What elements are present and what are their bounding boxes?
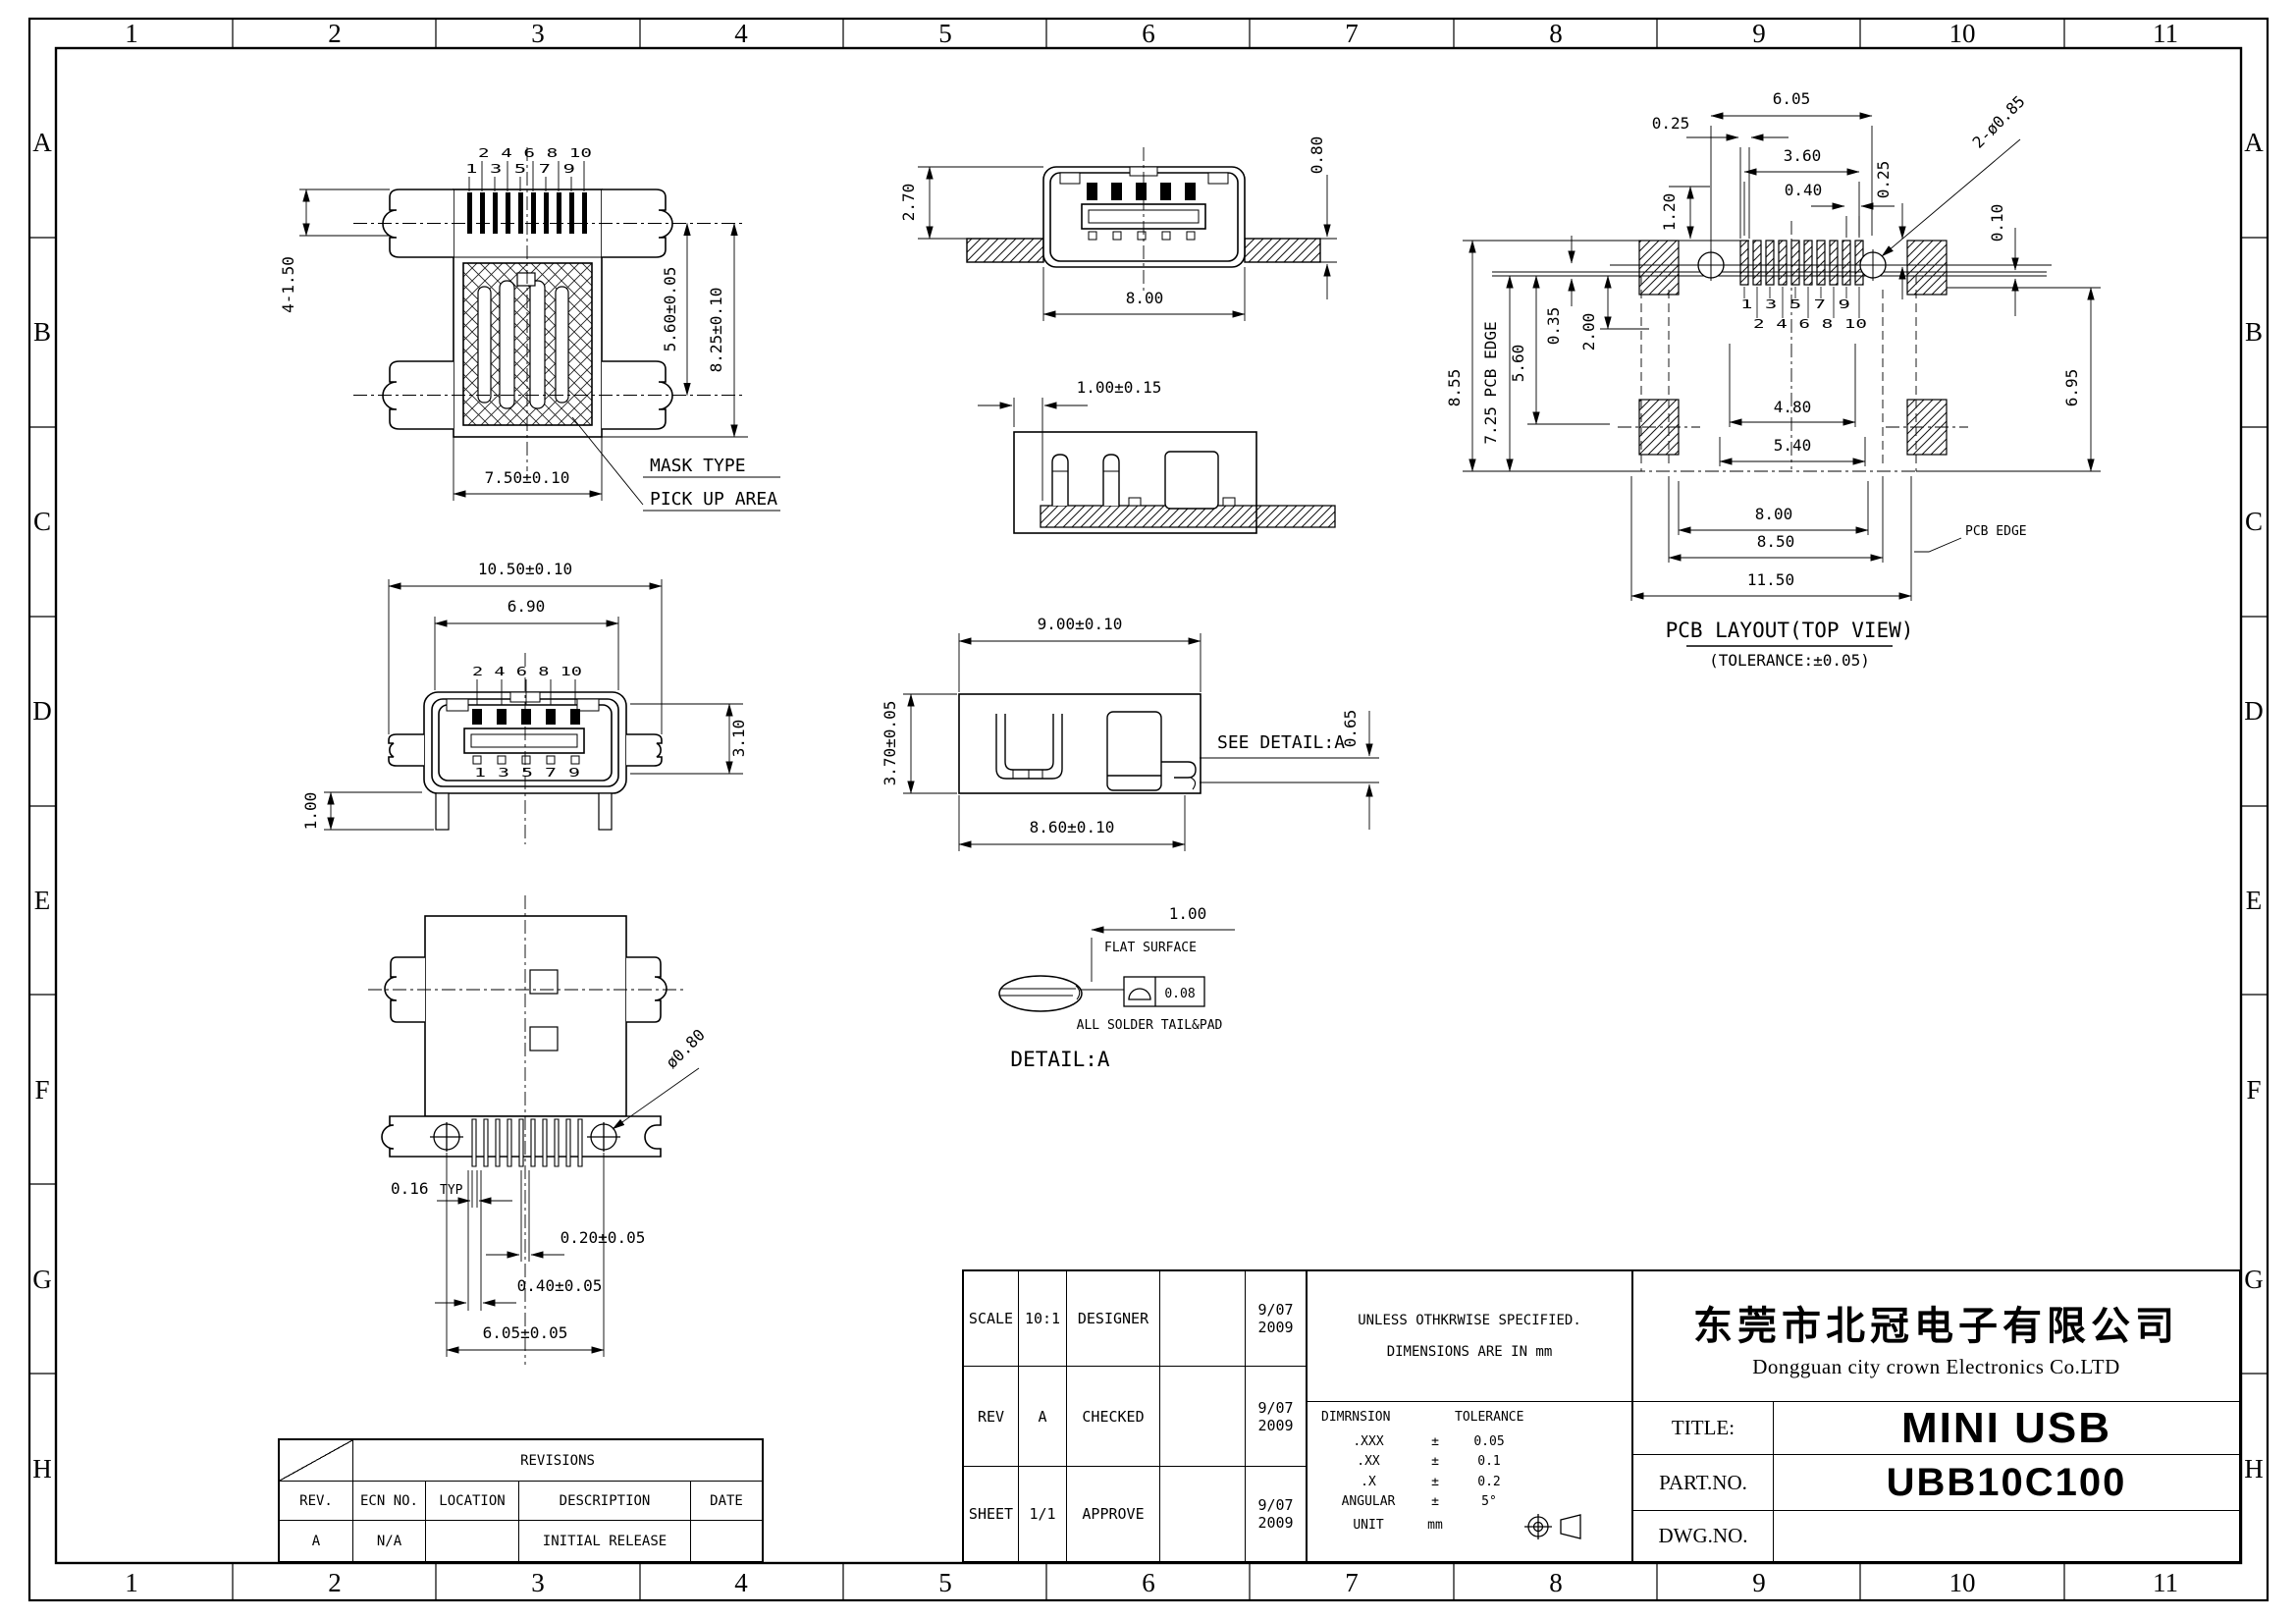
label-pickup-area: PICK UP AREA xyxy=(650,489,777,510)
dim-855: 8.55 xyxy=(1445,369,1464,407)
zone-col-top: 8 xyxy=(1549,19,1563,48)
dim-pcb-thickness: 0.80 xyxy=(1308,136,1326,175)
dim-hole: ø0.80 xyxy=(662,1025,708,1071)
tol-row-value: 0.1 xyxy=(1455,1452,1523,1473)
pin-numbers-odd: 1 3 5 7 9 xyxy=(465,162,575,176)
zone-col-bottom: 3 xyxy=(531,1568,545,1597)
tol-header-tolerance: TOLERANCE xyxy=(1455,1408,1523,1429)
signature-table: SCALE 10:1 DESIGNER 9/07 2009 REV A CHEC… xyxy=(962,1269,1308,1563)
location-col-header: LOCATION xyxy=(426,1482,519,1521)
plus-minus: ± xyxy=(1415,1452,1455,1473)
dim-540: 5.40 xyxy=(1774,436,1812,455)
zone-col-top: 3 xyxy=(531,19,545,48)
dim-shell: 6.90 xyxy=(507,597,546,616)
approve-date: 9/07 2009 xyxy=(1246,1467,1306,1561)
ecn-col-header: ECN NO. xyxy=(353,1482,426,1521)
plus-minus: ± xyxy=(1415,1432,1455,1453)
sheet-label: SHEET xyxy=(964,1467,1019,1561)
dim-360: 3.60 xyxy=(1784,146,1822,165)
dim-tail: 0.65 xyxy=(1341,710,1360,748)
dim-010: 0.10 xyxy=(1988,204,2006,243)
zone-row-right: H xyxy=(2244,1454,2264,1483)
tol-row-label: ANGULAR xyxy=(1321,1492,1415,1513)
dim-left: 3.70±0.05 xyxy=(881,701,899,786)
location-value xyxy=(426,1521,519,1561)
zone-col-top: 10 xyxy=(1949,19,1976,48)
rev-col-header: REV. xyxy=(280,1482,353,1521)
tol-row-value: 0.2 xyxy=(1455,1473,1523,1493)
zone-row-right: C xyxy=(2245,507,2263,536)
dim-lead: 1.00±0.15 xyxy=(1077,378,1162,397)
date-month: 9/07 xyxy=(1257,1496,1293,1514)
dim-flat: 1.00 xyxy=(1169,904,1207,923)
dim-standoff: 1.00 xyxy=(301,792,320,831)
date-year: 2009 xyxy=(1257,1417,1293,1434)
general-notes: UNLESS OTHKRWISE SPECIFIED. DIMENSIONS A… xyxy=(1308,1269,1631,1402)
rev-value: A xyxy=(1019,1367,1067,1467)
dim-1150: 11.50 xyxy=(1747,570,1794,589)
checked-date: 9/07 2009 xyxy=(1246,1367,1306,1467)
dim-height: 2.70 xyxy=(899,184,918,222)
zone-col-bottom: 5 xyxy=(938,1568,952,1597)
tol-header-dimension: DIMRNSION xyxy=(1321,1408,1415,1429)
dim-725-pcb-edge: 7.25 PCB EDGE xyxy=(1481,321,1500,444)
zone-row-right: B xyxy=(2245,317,2263,347)
date-year: 2009 xyxy=(1257,1514,1293,1532)
pin-numbers-top: 2 4 6 8 10 xyxy=(472,665,582,678)
zone-col-top: 9 xyxy=(1752,19,1766,48)
scale-label: SCALE xyxy=(964,1271,1019,1367)
revision-diagonal-cell xyxy=(280,1440,353,1482)
dim-pin-suffix: TYP xyxy=(440,1183,463,1198)
zone-col-bottom: 10 xyxy=(1949,1568,1976,1597)
zone-col-top: 11 xyxy=(2153,19,2178,48)
zone-row-right: A xyxy=(2244,128,2264,157)
dim-040: 0.40 xyxy=(1785,181,1823,199)
zone-col-bottom: 2 xyxy=(328,1568,342,1597)
plus-minus: ± xyxy=(1415,1473,1455,1493)
pcb-pin-numbers-odd: 1 3 5 7 9 xyxy=(1740,297,1850,311)
dim-span: 6.05±0.05 xyxy=(483,1323,568,1342)
date-month: 9/07 xyxy=(1257,1399,1293,1417)
dim-outer: 8.25±0.10 xyxy=(707,288,725,373)
dim-width: 7.50±0.10 xyxy=(485,468,570,487)
dim-480: 4.80 xyxy=(1774,398,1812,416)
part-no-value: UBB10C100 xyxy=(1774,1455,2239,1511)
company-name: 东莞市北冠电子有限公司 Dongguan city crown Electron… xyxy=(1633,1271,2239,1402)
zone-col-bottom: 9 xyxy=(1752,1568,1766,1597)
date-year: 2009 xyxy=(1257,1319,1293,1336)
dim-605: 6.05 xyxy=(1773,89,1811,108)
plus-minus: ± xyxy=(1415,1492,1455,1513)
zone-col-top: 2 xyxy=(328,19,342,48)
flatness-frame: 0.08 xyxy=(1124,977,1204,1006)
zone-row-left: B xyxy=(33,317,51,347)
label-solder: ALL SOLDER TAIL&PAD xyxy=(1077,1018,1223,1033)
ecn-value: N/A xyxy=(353,1521,426,1561)
dim-120: 1.20 xyxy=(1660,193,1679,232)
zone-row-left: C xyxy=(33,507,51,536)
zone-col-top: 4 xyxy=(734,19,748,48)
view-top-mask: 1 3 5 7 9 2 4 6 8 10 4-1.50 5.60±0.05 8.… xyxy=(279,146,780,511)
zone-col-top: 1 xyxy=(125,19,138,48)
pcb-pin-numbers-even: 2 4 6 8 10 xyxy=(1753,317,1867,331)
tol-row-label: .XXX xyxy=(1321,1432,1415,1453)
zone-col-bottom: 7 xyxy=(1345,1568,1359,1597)
view-side: 9.00±0.10 3.70±0.05 8.60±0.10 SEE DETAIL… xyxy=(881,615,1379,851)
rev-label: REV xyxy=(964,1367,1019,1467)
dim-bottom: 8.60±0.10 xyxy=(1030,818,1115,836)
dim-height: 3.10 xyxy=(729,720,748,758)
zone-row-left: F xyxy=(34,1075,49,1105)
dim-holes: 2-ø0.85 xyxy=(1969,92,2029,152)
zone-row-right: D xyxy=(2244,696,2264,726)
dwg-no-label: DWG.NO. xyxy=(1633,1511,1774,1561)
view-front-pcb: 2.70 0.80 8.00 xyxy=(899,136,1337,321)
description-col-header: DESCRIPTION xyxy=(519,1482,691,1521)
dim-025-left: 0.25 xyxy=(1652,114,1690,133)
zone-row-left: G xyxy=(32,1265,52,1294)
dim-035: 0.35 xyxy=(1544,307,1563,346)
dim-200: 2.00 xyxy=(1579,313,1598,351)
dim-pin-width: 0.16 xyxy=(391,1179,429,1198)
zone-col-top: 6 xyxy=(1142,19,1155,48)
zone-row-left: E xyxy=(34,886,51,915)
zone-col-top: 5 xyxy=(938,19,952,48)
zone-col-bottom: 11 xyxy=(2153,1568,2178,1597)
date-col-header: DATE xyxy=(691,1482,762,1521)
view-section: 1.00±0.15 xyxy=(978,378,1335,533)
scale-value: 10:1 xyxy=(1019,1271,1067,1367)
designer-signature xyxy=(1160,1271,1246,1367)
checked-label: CHECKED xyxy=(1067,1367,1160,1467)
dim-695: 6.95 xyxy=(2062,369,2081,407)
approve-signature xyxy=(1160,1467,1246,1561)
dim-gap: 0.20±0.05 xyxy=(561,1228,646,1247)
tol-row-label: .X xyxy=(1321,1473,1415,1493)
dim-inner: 5.60±0.05 xyxy=(661,267,679,352)
rev-value: A xyxy=(280,1521,353,1561)
view-front: 2 4 6 8 10 1 3 5 7 9 10.50±0.10 6.90 3.1… xyxy=(301,560,748,844)
dim-pitch: 0.40±0.05 xyxy=(517,1276,603,1295)
zone-row-right: E xyxy=(2246,886,2263,915)
description-value: INITIAL RELEASE xyxy=(519,1521,691,1561)
zone-row-right: G xyxy=(2244,1265,2264,1294)
dim-tab: 4-1.50 xyxy=(279,256,297,313)
dwg-no-value xyxy=(1774,1511,2239,1561)
pcb-layout-title: PCB LAYOUT(TOP VIEW) xyxy=(1666,619,1914,642)
company-title-block: 东莞市北冠电子有限公司 Dongguan city crown Electron… xyxy=(1631,1269,2241,1563)
pin-numbers-even: 2 4 6 8 10 xyxy=(478,146,592,160)
date-month: 9/07 xyxy=(1257,1301,1293,1319)
dim-025-right: 0.25 xyxy=(1874,161,1893,199)
drawing-sheet: 1 2 3 4 5 6 7 8 9 10 11 1 2 3 4 5 6 7 8 … xyxy=(0,0,2296,1618)
flatness-value: 0.08 xyxy=(1164,987,1195,1001)
zone-col-bottom: 1 xyxy=(125,1568,138,1597)
designer-label: DESIGNER xyxy=(1067,1271,1160,1367)
dim-total: 10.50±0.10 xyxy=(478,560,572,578)
notes-line1: UNLESS OTHKRWISE SPECIFIED. xyxy=(1358,1313,1581,1328)
approve-label: APPROVE xyxy=(1067,1467,1160,1561)
detail-a: 1.00 FLAT SURFACE 0.08 ALL SOLDER TAIL&P… xyxy=(999,904,1235,1071)
dim-560: 5.60 xyxy=(1509,345,1527,383)
tolerance-table: DIMRNSION TOLERANCE .XXX ± 0.05 .XX ± 0.… xyxy=(1308,1402,1631,1563)
zone-row-left: D xyxy=(32,696,52,726)
checked-signature xyxy=(1160,1367,1246,1467)
label-mask-type: MASK TYPE xyxy=(650,456,746,476)
company-name-en: Dongguan city crown Electronics Co.LTD xyxy=(1752,1355,2120,1379)
third-angle-projection-icon xyxy=(1523,1513,1586,1540)
part-no-label: PART.NO. xyxy=(1633,1455,1774,1511)
view-pcb-layout: 1 3 5 7 9 2 4 6 8 10 xyxy=(1445,89,2101,670)
pin-numbers-bottom: 1 3 5 7 9 xyxy=(474,766,580,780)
zone-col-bottom: 4 xyxy=(734,1568,748,1597)
unit-value: mm xyxy=(1415,1516,1455,1537)
dim-width: 8.00 xyxy=(1126,289,1164,307)
label-pcb-edge: PCB EDGE xyxy=(1965,524,2027,539)
see-detail-label: SEE DETAIL:A xyxy=(1217,732,1345,753)
designer-date: 9/07 2009 xyxy=(1246,1271,1306,1367)
view-bottom: 0.16 TYP 0.20±0.05 0.40±0.05 6.05±0.05 ø… xyxy=(368,895,709,1365)
dim-800: 8.00 xyxy=(1755,505,1793,523)
detail-a-title: DETAIL:A xyxy=(1010,1048,1110,1071)
zone-col-bottom: 6 xyxy=(1142,1568,1155,1597)
tol-row-value: 5° xyxy=(1455,1492,1523,1513)
date-value xyxy=(691,1521,762,1561)
notes-line2: DIMENSIONS ARE IN mm xyxy=(1387,1344,1553,1360)
title-label: TITLE: xyxy=(1633,1402,1774,1455)
zone-row-left: A xyxy=(32,128,52,157)
label-flat-surface: FLAT SURFACE xyxy=(1104,941,1197,955)
dim-top: 9.00±0.10 xyxy=(1038,615,1123,633)
sheet-value: 1/1 xyxy=(1019,1467,1067,1561)
revisions-table: REVISIONS REV. ECN NO. LOCATION DESCRIPT… xyxy=(278,1438,764,1563)
title-value: MINI USB xyxy=(1774,1402,2239,1455)
revisions-header: REVISIONS xyxy=(353,1440,762,1482)
zone-col-top: 7 xyxy=(1345,19,1359,48)
zone-col-bottom: 8 xyxy=(1549,1568,1563,1597)
zone-row-right: F xyxy=(2246,1075,2261,1105)
pcb-layout-tolerance: (TOLERANCE:±0.05) xyxy=(1709,651,1870,670)
unit-label: UNIT xyxy=(1321,1516,1415,1537)
dim-850: 8.50 xyxy=(1757,532,1795,551)
company-name-cn: 东莞市北冠电子有限公司 xyxy=(1693,1294,2179,1351)
tol-row-value: 0.05 xyxy=(1455,1432,1523,1453)
zone-row-left: H xyxy=(32,1454,52,1483)
tol-row-label: .XX xyxy=(1321,1452,1415,1473)
